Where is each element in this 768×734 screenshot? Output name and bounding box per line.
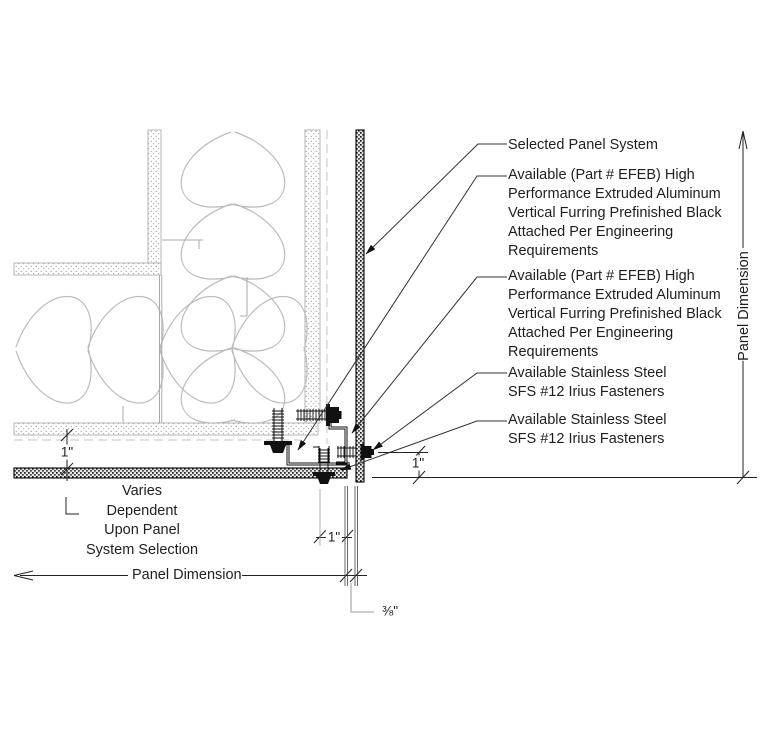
- callout-furring-note-2: Available (Part # EFEB) High Performance…: [508, 267, 768, 362]
- dimension-joint-three-eighths: ⅜": [380, 604, 400, 619]
- dimension-gap-bottom: 1": [326, 530, 342, 545]
- sheathing-bands: [14, 130, 320, 435]
- vertical-panel: [356, 130, 364, 482]
- horizontal-panel: [14, 468, 347, 478]
- dimension-gap-right: 1": [410, 456, 426, 471]
- callout-varies-note: Varies Dependent Upon Panel System Selec…: [84, 482, 200, 560]
- panel-fastener-vertical: [313, 448, 335, 484]
- callout-selected-panel-system: Selected Panel System: [508, 136, 768, 155]
- leader-fastener-1: [373, 373, 507, 450]
- dimension-panel-dimension-right: Panel Dimension: [734, 251, 754, 361]
- extension-lines: [320, 486, 374, 612]
- leader-furring-2: [352, 277, 507, 433]
- dimension-panel-dimension-bottom: Panel Dimension: [132, 567, 242, 583]
- callout-fastener-note-1: Available Stainless Steel SFS #12 Irius …: [508, 364, 768, 402]
- callout-furring-note-1: Available (Part # EFEB) High Performance…: [508, 166, 768, 261]
- membrane-dashed-lines: [14, 130, 327, 444]
- callout-fastener-note-2: Available Stainless Steel SFS #12 Irius …: [508, 411, 768, 449]
- dimension-gap-left: 1": [59, 445, 75, 460]
- detail-drawing-canvas: Selected Panel System Available (Part # …: [0, 0, 768, 734]
